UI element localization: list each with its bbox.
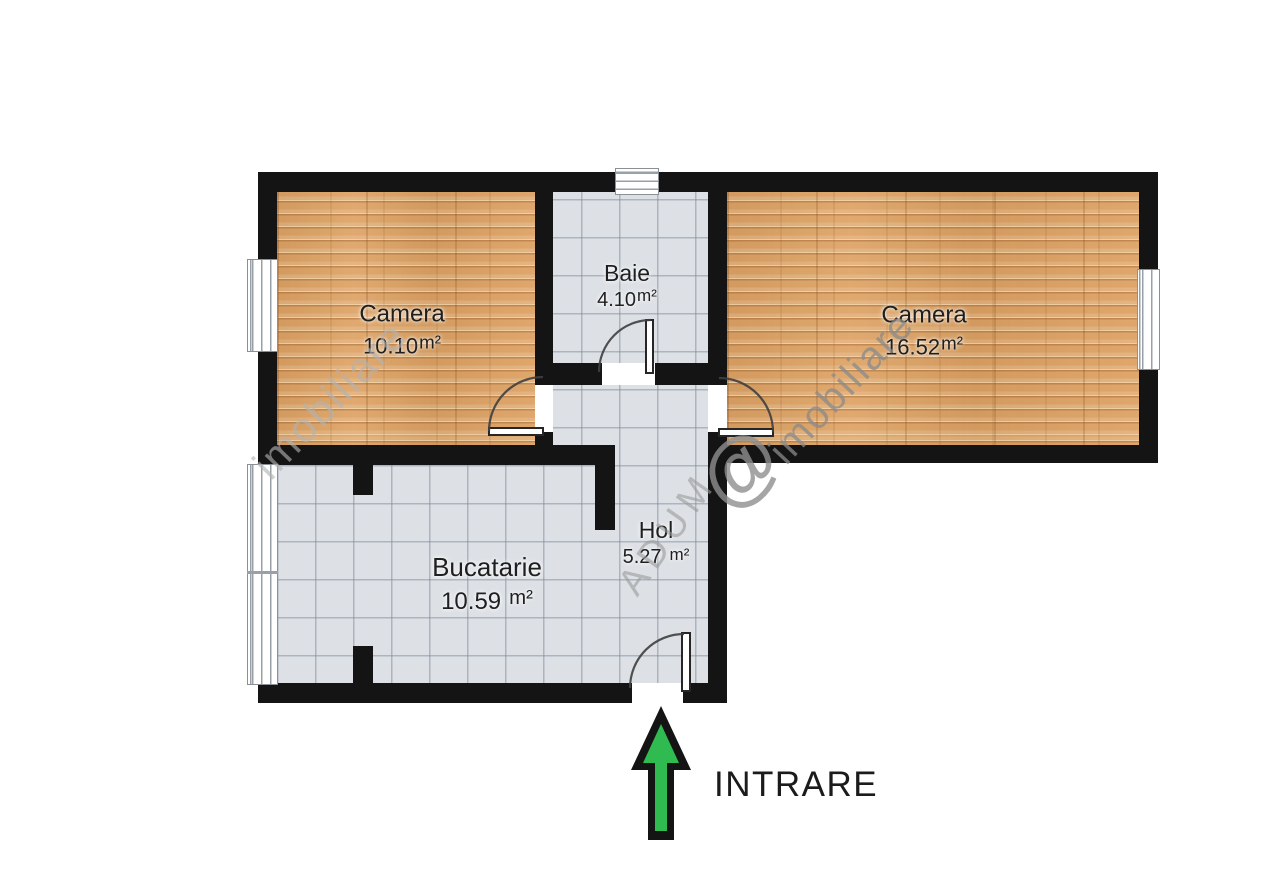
floor-plan: Camera 10.10m² Baie 4.10m² Camera 16.52m… — [0, 0, 1280, 884]
entrance-label: INTRARE — [714, 765, 878, 805]
door-arc-camera-left — [489, 377, 543, 431]
door-arc-entrance — [630, 634, 684, 688]
door-arc-camera-right — [719, 378, 773, 432]
door-arc-baie — [599, 320, 651, 372]
plan-overlay-graphics — [0, 0, 1280, 884]
